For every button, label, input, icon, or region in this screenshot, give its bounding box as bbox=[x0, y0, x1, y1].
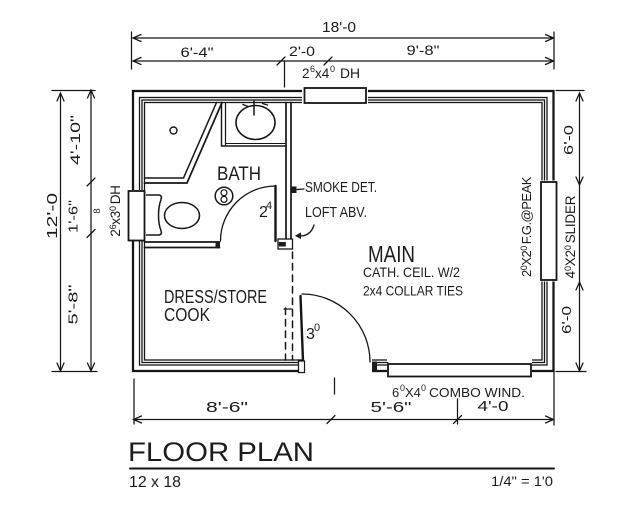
svg-text:5'-6": 5'-6" bbox=[371, 399, 412, 416]
svg-text:6'-0: 6'-0 bbox=[559, 306, 574, 334]
svg-text:FLOOR PLAN: FLOOR PLAN bbox=[128, 437, 314, 467]
svg-text:COOK: COOK bbox=[164, 305, 210, 325]
svg-text:SMOKE DET.: SMOKE DET. bbox=[305, 179, 377, 196]
svg-text:6'-4": 6'-4" bbox=[181, 44, 214, 60]
svg-text:40X20SLIDER: 40X20SLIDER bbox=[563, 195, 578, 278]
svg-text:0: 0 bbox=[330, 64, 335, 74]
svg-text:4'-0: 4'-0 bbox=[478, 398, 509, 415]
svg-text:2: 2 bbox=[302, 66, 310, 81]
svg-text:x4: x4 bbox=[315, 66, 330, 81]
svg-text:9'-8": 9'-8" bbox=[407, 42, 440, 58]
svg-text:BATH: BATH bbox=[217, 164, 261, 185]
svg-text:18'-0: 18'-0 bbox=[322, 20, 356, 36]
svg-text:0: 0 bbox=[421, 383, 426, 393]
svg-text:DH: DH bbox=[340, 66, 360, 81]
svg-text:1/4" = 1'0: 1/4" = 1'0 bbox=[491, 473, 553, 489]
svg-text:8: 8 bbox=[92, 208, 103, 213]
svg-text:4: 4 bbox=[266, 200, 272, 212]
svg-text:5'-8": 5'-8" bbox=[66, 284, 81, 325]
svg-text:1'-6": 1'-6" bbox=[66, 200, 81, 233]
svg-text:0: 0 bbox=[314, 322, 320, 334]
svg-text:X4: X4 bbox=[405, 385, 421, 400]
svg-text:4'-10": 4'-10" bbox=[68, 115, 83, 165]
svg-text:2'-0: 2'-0 bbox=[289, 43, 315, 59]
svg-text:12'-0: 12'-0 bbox=[45, 193, 61, 239]
svg-text:CATH. CEIL. W/2: CATH. CEIL. W/2 bbox=[363, 264, 460, 280]
svg-text:6: 6 bbox=[392, 385, 399, 400]
svg-text:DRESS/STORE: DRESS/STORE bbox=[164, 287, 267, 307]
svg-text:2x4 COLLAR TIES: 2x4 COLLAR TIES bbox=[363, 283, 463, 299]
svg-text:12 x 18: 12 x 18 bbox=[129, 474, 181, 491]
svg-text:6'-0: 6'-0 bbox=[561, 125, 576, 155]
svg-text:20X20F.G.@PEAK: 20X20F.G.@PEAK bbox=[519, 176, 534, 277]
svg-text:LOFT ABV.: LOFT ABV. bbox=[305, 204, 367, 221]
svg-text:8'-6": 8'-6" bbox=[206, 399, 248, 416]
